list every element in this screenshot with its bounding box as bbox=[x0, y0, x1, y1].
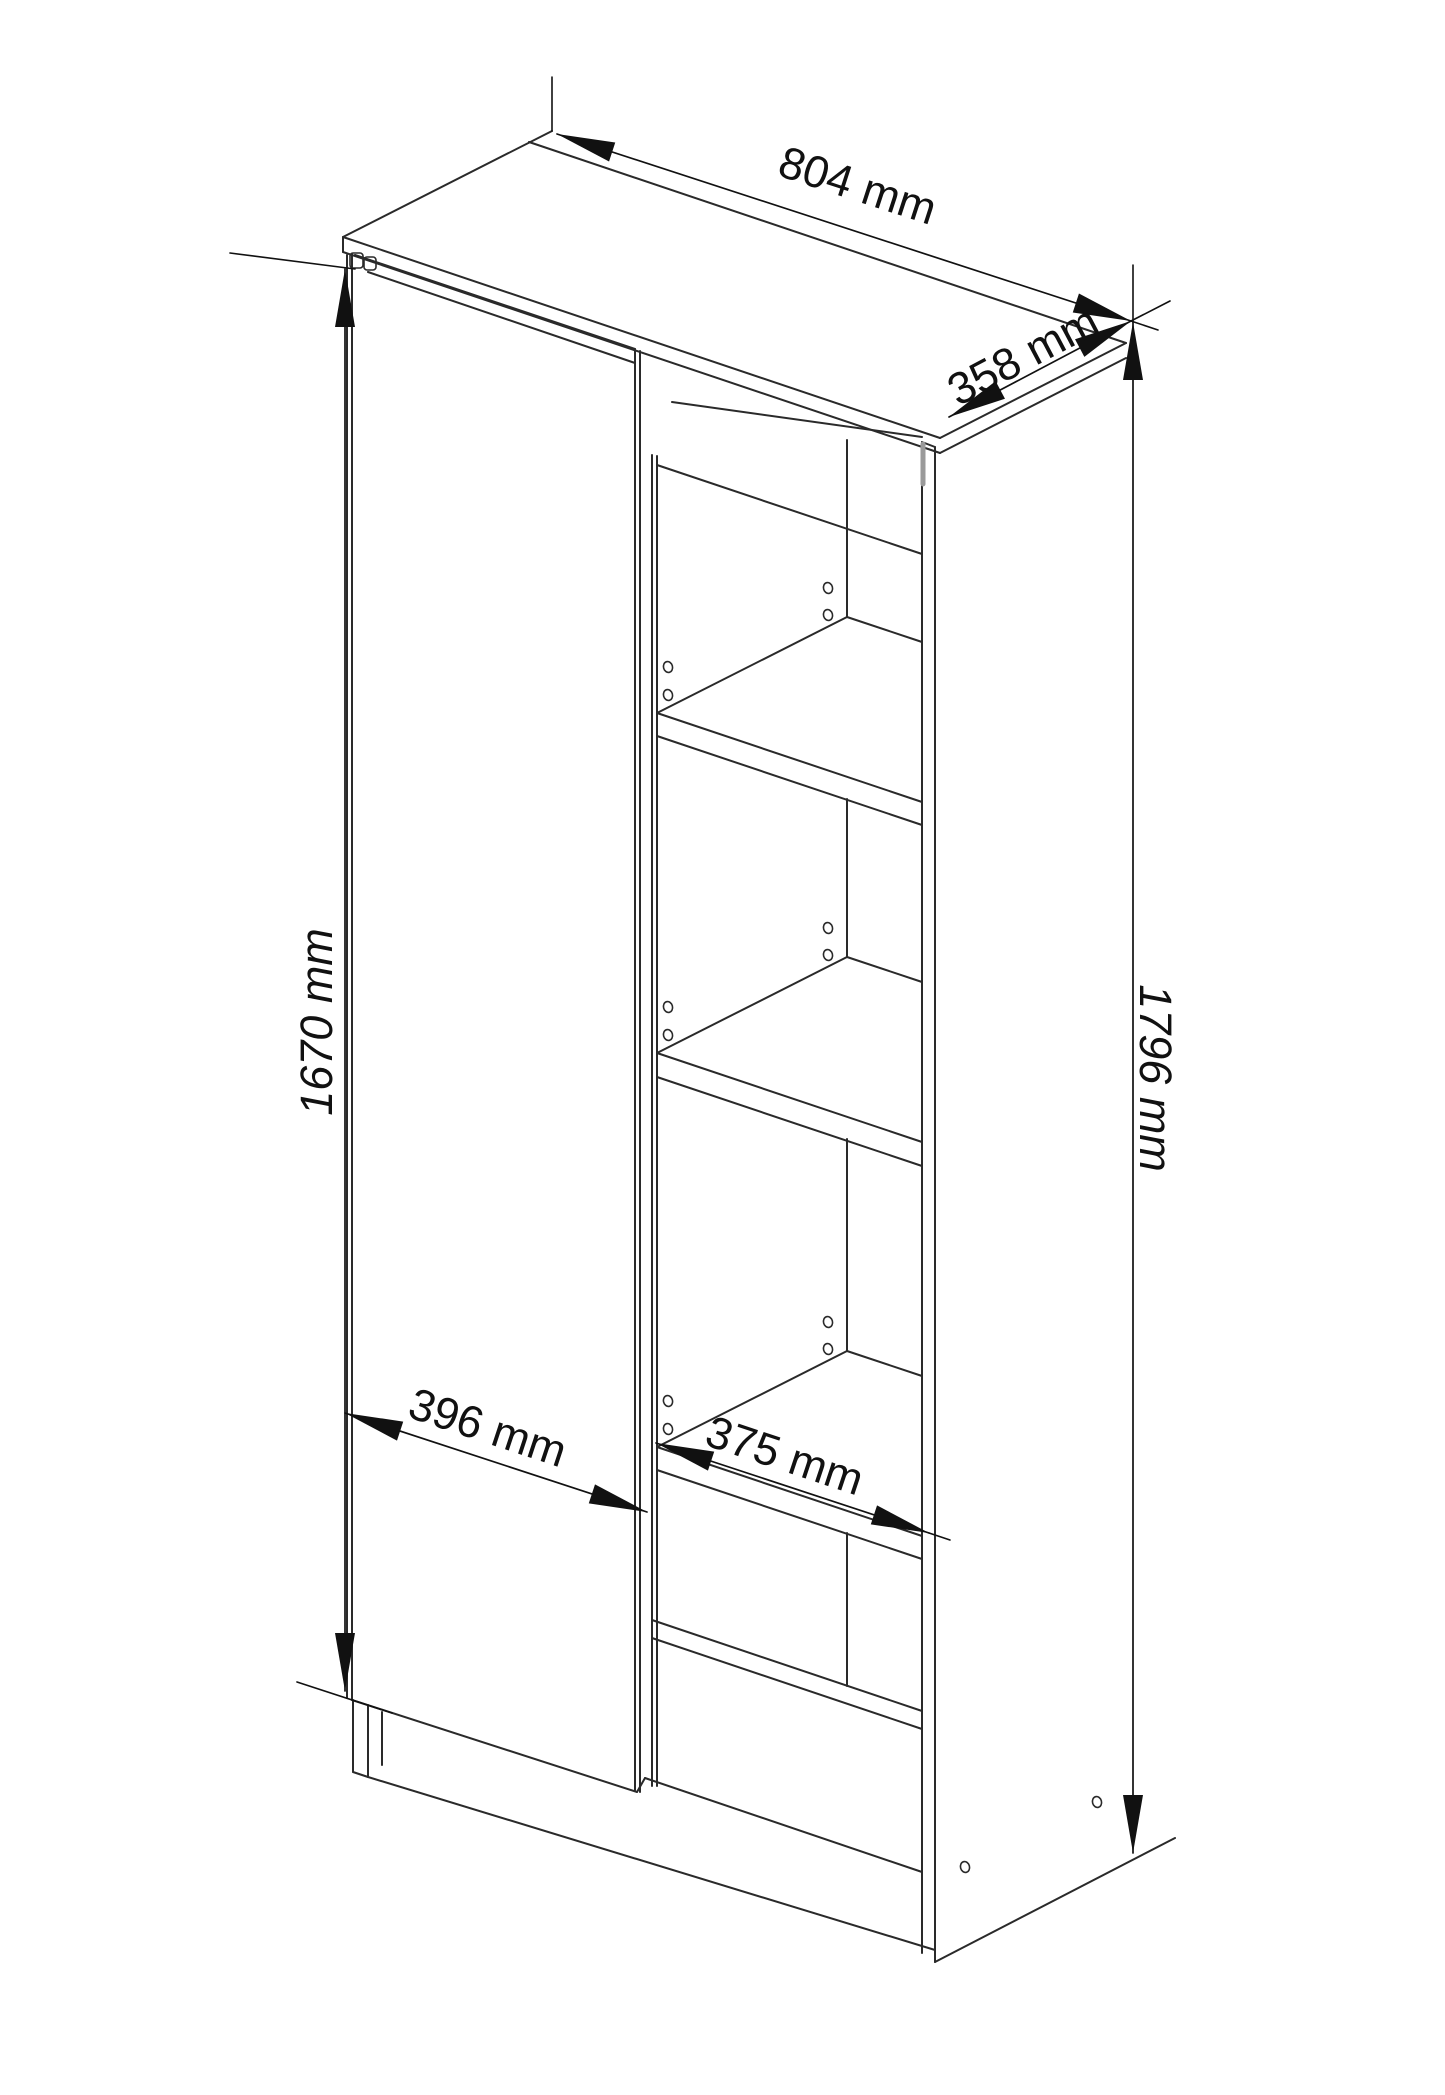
dimension-arrowhead bbox=[1123, 322, 1143, 380]
panel-fitting-mark bbox=[959, 1861, 971, 1874]
dimension-annotations: 804 mm358 mm1796 mm1670 mm396 mm375 mm bbox=[291, 134, 1181, 1853]
dimension-door-height: 1670 mm bbox=[291, 269, 355, 1691]
cabinet-edge bbox=[368, 272, 635, 363]
shelf-pin-hole bbox=[822, 922, 834, 935]
panel-fitting-mark bbox=[1091, 1796, 1103, 1809]
cabinet-edge bbox=[847, 617, 922, 642]
cabinet-edge bbox=[935, 1838, 1175, 1962]
cabinet-edge bbox=[343, 237, 940, 438]
cabinet-edge bbox=[657, 736, 922, 825]
cabinet-edge bbox=[657, 617, 847, 713]
extension-line bbox=[1131, 301, 1170, 321]
shelf-pin-hole bbox=[662, 689, 674, 702]
cabinet-edge bbox=[352, 1700, 637, 1792]
dimension-door-width: 396 mm bbox=[345, 1378, 647, 1512]
dimension-shelf-width: 375 mm bbox=[656, 1405, 929, 1533]
extension-line bbox=[1131, 321, 1158, 330]
shelf-pin-hole bbox=[822, 1343, 834, 1356]
cabinet-edge bbox=[657, 713, 922, 802]
cabinet-edge bbox=[657, 957, 847, 1053]
dimension-arrowhead bbox=[1123, 1795, 1143, 1853]
cabinet-edge bbox=[652, 1620, 922, 1711]
cabinet-edge bbox=[847, 1351, 922, 1376]
dimension-label-total-height: 1796 mm bbox=[1130, 984, 1181, 1172]
dimension-arrowhead bbox=[589, 1484, 647, 1512]
shelf-pin-hole bbox=[822, 949, 834, 962]
extension-line bbox=[929, 1533, 950, 1540]
cabinet-edge bbox=[657, 465, 922, 554]
cabinet-outline bbox=[343, 131, 1175, 1962]
dimension-arrowhead bbox=[345, 1413, 403, 1441]
shelf-pin-hole bbox=[822, 609, 834, 622]
cabinet-edge bbox=[657, 1053, 922, 1142]
technical-drawing: 804 mm358 mm1796 mm1670 mm396 mm375 mm bbox=[0, 0, 1445, 2095]
shelf-pin-hole bbox=[662, 1395, 674, 1408]
cabinet-edge bbox=[343, 131, 552, 237]
extension-line bbox=[230, 253, 355, 269]
drawing-page: 804 mm358 mm1796 mm1670 mm396 mm375 mm bbox=[0, 0, 1445, 2095]
shelf-pin-hole bbox=[662, 1423, 674, 1436]
cabinet-edge bbox=[645, 1778, 922, 1872]
dimension-label-door-height: 1670 mm bbox=[291, 928, 342, 1116]
cabinet-edge bbox=[652, 1638, 922, 1729]
cabinet-edge bbox=[368, 1777, 935, 1950]
shelf-pin-hole bbox=[662, 1001, 674, 1014]
dimension-top-width: 804 mm bbox=[557, 134, 1131, 321]
cabinet-edge bbox=[343, 252, 940, 453]
cabinet-edge bbox=[657, 1077, 922, 1166]
shelf-pin-hole bbox=[822, 1316, 834, 1329]
dimension-total-height: 1796 mm bbox=[1123, 322, 1181, 1853]
cabinet-edge bbox=[847, 957, 922, 982]
shelf-pin-hole bbox=[662, 661, 674, 674]
shelf-pin-hole bbox=[822, 582, 834, 595]
shelf-pin-holes bbox=[662, 582, 1103, 1874]
dimension-label-top-depth: 358 mm bbox=[939, 295, 1107, 416]
dimension-arrowhead bbox=[557, 134, 615, 161]
cabinet-edge bbox=[355, 255, 635, 349]
dimension-label-door-width: 396 mm bbox=[403, 1378, 573, 1477]
dimension-label-top-width: 804 mm bbox=[773, 136, 943, 235]
shelf-pin-hole bbox=[662, 1029, 674, 1042]
cabinet-edge bbox=[353, 1772, 368, 1777]
technical-drawing-canvas: 804 mm358 mm1796 mm1670 mm396 mm375 mm bbox=[0, 0, 1445, 2095]
